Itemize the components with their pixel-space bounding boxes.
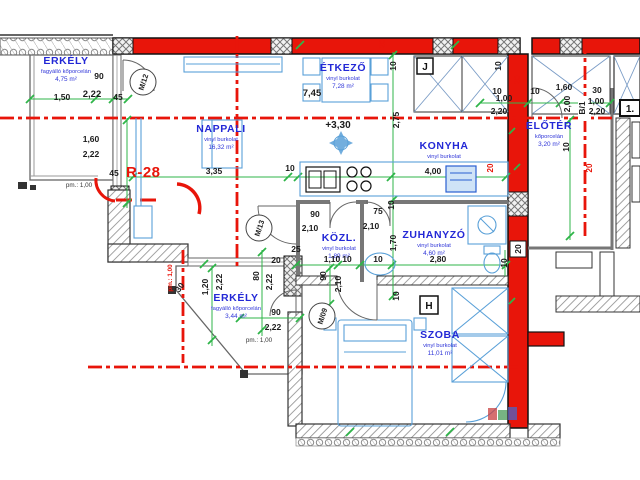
room-area: 3,44 m² [225,313,247,320]
tag-j: J [422,62,428,73]
dim-text: 90 [271,307,281,317]
room-area: 4,75 m² [55,76,77,83]
dim-text: 2,22 [265,322,282,332]
dim-text: 10 [561,142,571,152]
dim-text: 1,70 [388,234,398,251]
dim-text: 75 [373,206,383,216]
room-area: 3,20 m² [538,141,560,148]
dim-text: 2,75 [391,111,401,128]
tag-1: 1. [626,104,635,115]
room-finish: vinyl burkolat [204,137,238,143]
room-area: 16,32 m² [208,144,233,151]
room-name: KONYHA [419,140,468,152]
level-mark-icon [329,131,353,155]
axis-tag-b1: B/1 [577,101,587,115]
dim-text: 10 [499,258,509,268]
room-name: KÖZL. [322,231,357,244]
red-dim: 20 [585,163,594,172]
dim-text: 10 [530,86,540,96]
room-name: SZOBA [420,329,460,341]
dim-text: 10 [386,200,396,210]
dim-text: 2,10 [333,275,343,292]
dim-text: 1,00 [588,96,605,106]
room-finish: fagyálló kőporcelán [41,69,91,75]
dim-text: 30 [592,85,602,95]
dim-text: 1,00 [496,93,513,103]
dim-text: 20 [271,255,281,265]
dim-text: 90 [94,71,104,81]
floor-plan-canvas: J H 1. B/1 20 M/12 M/13 M/09 ERKÉLY fagy… [0,0,640,480]
room-name: ERKÉLY [213,291,258,304]
tag-h: H [425,301,432,312]
dim-text: 80 [251,271,261,281]
dim-text: 90 [310,209,320,219]
dim-text: 2,10 [363,221,380,231]
room-finish: fagyálló kőporcelán [211,306,261,312]
room-finish: vinyl burkolat [423,343,457,349]
dim-text: 1,60 [556,82,573,92]
dim-text: 1,60 [83,134,100,144]
room-name: NAPPALI [196,123,246,135]
dim-text: 10 [373,254,383,264]
dim-text: 2,22 [214,273,224,290]
room-finish: vinyl burkolat [326,76,360,82]
dim-text: 2,22 [83,149,100,159]
watermark-logo [488,407,517,420]
room-name: ELŐTÉR [526,119,572,132]
dim-text: 45 [109,168,119,178]
dim-text: 7,45 [303,88,322,99]
dim-text: 2,00 [562,95,572,112]
dim-text: 2,22 [83,89,102,100]
dim-text: pm.: 1,00 [246,337,273,344]
room-name: ZUHANYZÓ [402,228,465,241]
dim-text: 2,22 [264,273,274,290]
floor-plan-drawing: J H 1. B/1 20 M/12 M/13 M/09 ERKÉLY fagy… [0,0,640,480]
dim-text: 10 [493,61,503,71]
hob-icon [347,167,371,191]
dim-text: 2,80 [430,254,447,264]
room-name: ÉTKEZŐ [320,61,366,74]
dim-text: 2,10 [302,223,319,233]
dim-text: 10 [285,163,295,173]
dim-text: 1,50 [54,92,71,102]
red-dim: pm.: 1,00 [167,264,174,292]
dim-text: 10 [388,61,398,71]
dim-text: 45 [113,92,123,102]
red-dim: 20 [378,39,387,48]
dim-text: 1,10 [324,254,341,264]
room-finish: vinyl burkolat [322,246,356,252]
dim-text: 2,20 [491,106,508,116]
red-dim: 20 [513,75,522,84]
dim-text: 10 [342,254,352,264]
room-area: 11,01 m² [428,350,453,357]
flat-code: R-28 [126,164,161,181]
dim-text: 3,35 [206,166,223,176]
wall-thickness-tag: 20 [513,244,523,254]
room-name: ERKÉLY [43,54,88,67]
dim-text: 4,00 [425,166,442,176]
room-finish: vinyl burkolat [417,243,451,249]
room-area: 7,28 m² [332,83,354,90]
dim-text: 10 [391,291,401,301]
level-mark: +3,30 [325,120,351,131]
red-dim: 20 [486,163,495,172]
dim-text: 25 [291,244,301,254]
dim-text: pm.: 1,00 [66,182,93,189]
dim-text: 1,20 [200,278,210,295]
dim-text: 90 [318,271,328,281]
room-finish: vinyl burkolat [427,154,461,160]
dim-text: 2,20 [589,106,606,116]
fridge-icon [446,166,476,192]
room-finish: kőporcelán [535,134,563,140]
